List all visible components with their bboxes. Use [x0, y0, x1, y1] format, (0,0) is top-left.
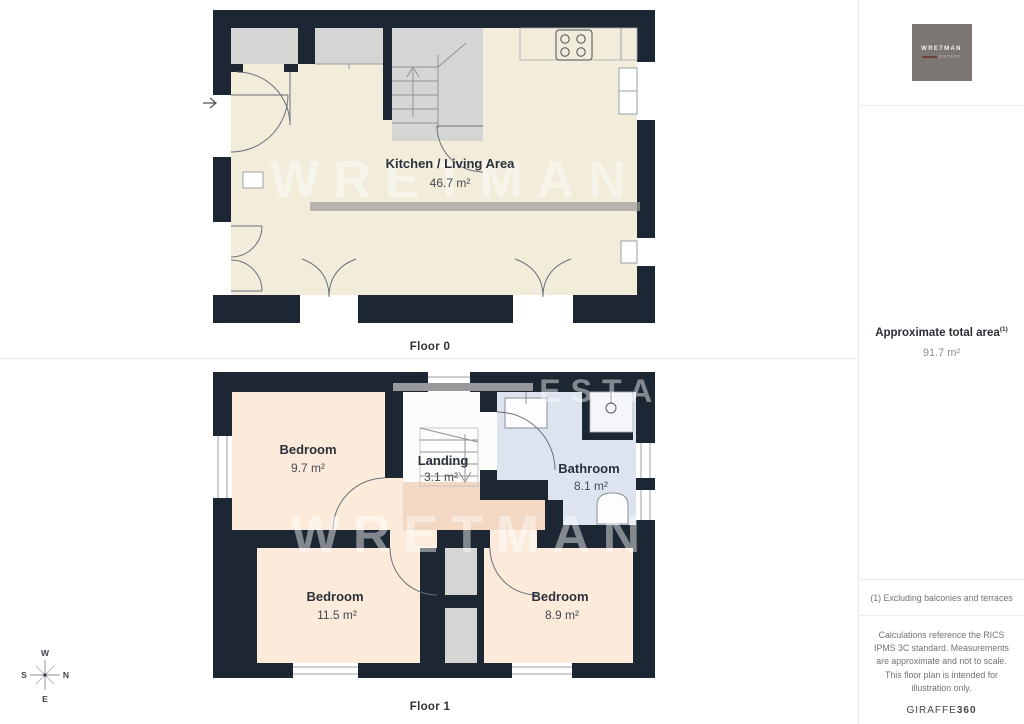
- watermark-wretman-floor1: WRETMAN: [291, 506, 654, 564]
- wall-stub: [383, 10, 392, 120]
- compass-icon: W N E S: [13, 643, 77, 707]
- watermark-estate-floor1: ESTATE: [539, 373, 660, 409]
- bedroom2-floor: [257, 548, 428, 665]
- room-area-landing: 3.1 m²: [424, 470, 458, 484]
- total-area-section: Approximate total area(1) 91.7 m²: [859, 106, 1024, 579]
- wall-bathroom-hall: [480, 480, 548, 500]
- watermark-bar-floor0: [310, 202, 640, 211]
- wretman-estate-logo: WRETMAN ESTATE: [912, 24, 972, 81]
- compass-s: S: [21, 670, 27, 680]
- floor1-plan: ESTATE WRETMAN Bedroom 9.7 m² Landing 3.…: [200, 362, 660, 694]
- floorplan-page: WRETMAN Kitchen / Living Area 46.7 m² Fl…: [0, 0, 1024, 724]
- brand-name: GIRAFFE: [906, 705, 956, 716]
- window-right-upper: [637, 62, 655, 120]
- window-bottom-bedroom2: [293, 663, 358, 678]
- closet-center: [315, 28, 383, 64]
- room-label-landing: Landing: [418, 453, 469, 468]
- french-door-opening: [213, 222, 231, 295]
- room-label-bedroom3: Bedroom: [531, 589, 588, 604]
- room-area-bedroom2: 11.5 m²: [317, 608, 357, 622]
- room-label-bedroom1: Bedroom: [279, 442, 336, 457]
- patio-door-opening-left: [300, 295, 358, 323]
- compass-n: N: [63, 670, 69, 680]
- compass-e: E: [42, 694, 48, 704]
- bedroom3-floor: [484, 548, 633, 665]
- total-area-label-text: Approximate total area: [875, 326, 1000, 338]
- compass-w: W: [41, 648, 50, 658]
- room-area-bathroom: 8.1 m²: [574, 479, 608, 493]
- room-area-bedroom1: 9.7 m²: [291, 461, 325, 475]
- window-right-lower: [637, 238, 655, 266]
- shower-wall-bottom: [582, 432, 633, 440]
- radiator: [243, 172, 263, 188]
- wall-bottom: [213, 663, 655, 678]
- entry-opening: [213, 95, 231, 157]
- brand-suffix: 360: [957, 705, 977, 716]
- floor1-label: Floor 1: [200, 701, 660, 713]
- total-area-superscript: (1): [1000, 326, 1008, 333]
- room-area-bedroom3: 8.9 m²: [545, 608, 579, 622]
- room-label-bedroom2: Bedroom: [306, 589, 363, 604]
- footnote-section: (1) Excluding balconies and terraces: [859, 579, 1024, 615]
- room-label-bathroom: Bathroom: [558, 461, 619, 476]
- logo-name: WRETMAN: [921, 46, 961, 52]
- footnote-text: (1) Excluding balconies and terraces: [862, 593, 1020, 603]
- wall-landing-bathroom: [480, 372, 497, 412]
- stairs-floor0: [392, 28, 483, 141]
- patio-door-opening-right: [513, 295, 573, 323]
- total-area-label: Approximate total area(1): [875, 326, 1008, 339]
- logo-section: WRETMAN ESTATE: [859, 0, 1024, 106]
- bathroom-door-opening: [480, 412, 497, 470]
- disclaimer-text: Calculations reference the RICS IPMS 3C …: [874, 629, 1009, 695]
- window-bottom-bedroom3: [512, 663, 572, 678]
- window-left-bedroom1: [213, 436, 232, 498]
- window-sill-lower: [621, 241, 637, 263]
- disclaimer-section: Calculations reference the RICS IPMS 3C …: [859, 615, 1024, 724]
- room-label-kitchen: Kitchen / Living Area: [386, 156, 516, 171]
- logo-line: [922, 56, 937, 58]
- wall-stub: [284, 64, 298, 72]
- total-area-value: 91.7 m²: [923, 347, 960, 359]
- wall-stub: [298, 10, 315, 64]
- closet-left: [231, 28, 298, 64]
- logo-subtitle: ESTATE: [939, 54, 961, 59]
- wall-left-thick: [213, 530, 257, 665]
- info-sidebar: WRETMAN ESTATE Approximate total area(1)…: [858, 0, 1024, 724]
- giraffe360-brand: GIRAFFE360: [906, 705, 976, 716]
- wall-stub: [231, 64, 243, 72]
- room-area-kitchen: 46.7 m²: [430, 176, 471, 190]
- floor0-label: Floor 0: [200, 341, 660, 353]
- floor0-plan: WRETMAN Kitchen / Living Area 46.7 m²: [200, 5, 660, 355]
- logo-subtitle-row: ESTATE: [922, 54, 961, 59]
- wardrobe-bar: [393, 383, 533, 391]
